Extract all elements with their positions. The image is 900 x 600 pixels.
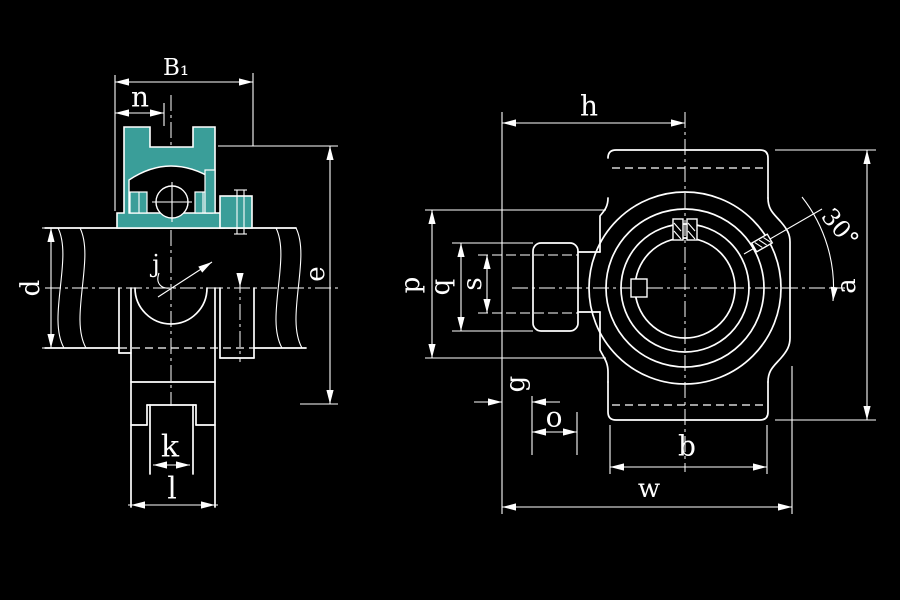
dim-label-k: k: [161, 430, 180, 465]
dim-label-B1: B₁: [163, 55, 189, 81]
dim-label-b: b: [678, 430, 696, 463]
front-view-dimensions: h a p q s g: [396, 90, 876, 515]
drawing-canvas: B₁ n d e j k l: [0, 0, 900, 600]
takeup-housing-outline: [578, 150, 790, 420]
housing-lower-outline: [119, 288, 254, 507]
j-leader-arrow: [158, 262, 212, 297]
dim-label-p: p: [396, 277, 426, 294]
grease-hole-slot: [752, 234, 773, 252]
frame-rail-section: [533, 243, 578, 331]
dim-label-g: g: [501, 376, 531, 393]
inner-ring-side-face: [205, 170, 215, 213]
side-section-view: B₁ n d e j k l: [16, 55, 340, 507]
dim-label-e: e: [301, 266, 331, 281]
dim-label-w: w: [638, 474, 660, 504]
dim-label-s: s: [458, 277, 488, 290]
front-view: 30° h a p q s: [396, 90, 876, 515]
bearing-drawing-svg: B₁ n d e j k l: [0, 0, 900, 600]
housing-section-highlight: [117, 127, 252, 234]
dim-label-angle: 30°: [816, 203, 865, 254]
dim-label-n: n: [131, 81, 149, 114]
dim-label-d: d: [16, 280, 46, 297]
dim-label-h: h: [580, 90, 598, 123]
dim-label-a: a: [832, 278, 862, 294]
dim-label-q: q: [426, 279, 456, 296]
locking-collar-section: [220, 196, 252, 228]
keyway-notch: [631, 279, 647, 297]
dim-label-l: l: [167, 472, 177, 507]
dim-label-o: o: [546, 401, 563, 434]
side-view-dimensions: B₁ n d e j k l: [16, 55, 338, 507]
